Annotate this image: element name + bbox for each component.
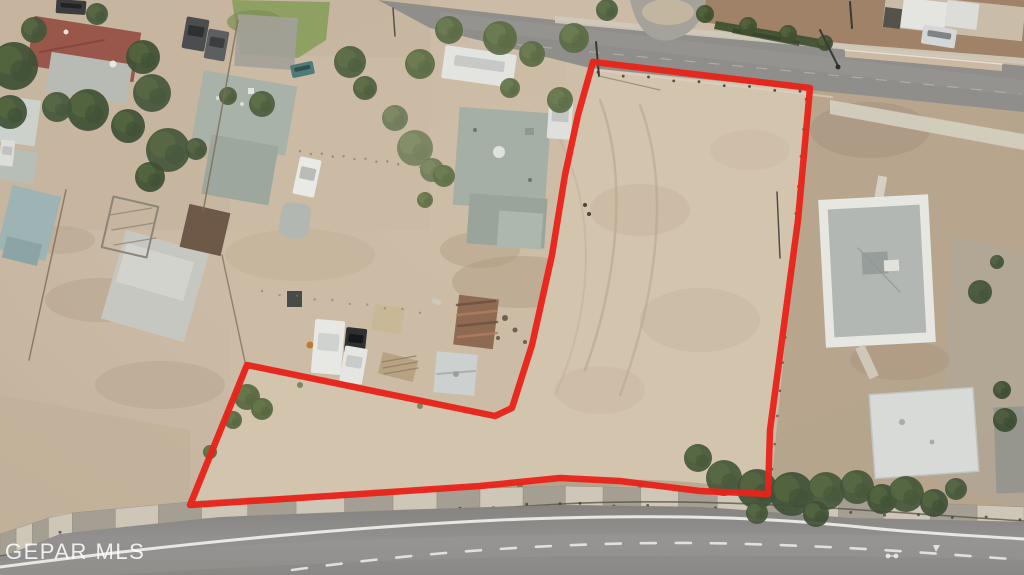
bush bbox=[990, 255, 1004, 269]
right-house-box bbox=[884, 260, 900, 272]
satellite-dish bbox=[110, 61, 117, 68]
bush bbox=[739, 17, 757, 35]
tree bbox=[596, 0, 618, 21]
tree bbox=[185, 138, 207, 160]
center-house bbox=[453, 107, 552, 211]
person-dot bbox=[587, 212, 591, 216]
junk bbox=[523, 340, 527, 344]
tree bbox=[888, 476, 924, 512]
tree bbox=[21, 17, 47, 43]
br-building bbox=[869, 387, 979, 478]
tree bbox=[111, 109, 145, 143]
roof-vent bbox=[899, 419, 905, 425]
bush bbox=[968, 280, 992, 304]
bush bbox=[779, 25, 797, 43]
dumpster bbox=[287, 291, 302, 307]
tree bbox=[559, 23, 589, 53]
tree bbox=[920, 489, 948, 517]
tree bbox=[353, 76, 377, 100]
sage-house-wing bbox=[201, 135, 278, 206]
tree bbox=[42, 92, 72, 122]
water-tank bbox=[493, 146, 505, 158]
tree bbox=[803, 501, 829, 527]
parcel-blotch bbox=[555, 366, 645, 414]
tree bbox=[519, 41, 545, 67]
parcel-blotch bbox=[590, 184, 690, 236]
junk bbox=[513, 328, 518, 333]
tree bbox=[417, 192, 433, 208]
roof-vent bbox=[528, 178, 532, 182]
tree bbox=[435, 16, 463, 44]
grass-tuft bbox=[297, 382, 303, 388]
tree bbox=[547, 87, 573, 113]
tr-building bbox=[945, 0, 980, 30]
watermark-text: GEPAR MLS bbox=[5, 539, 145, 565]
roof-vent bbox=[64, 30, 69, 35]
bush bbox=[817, 35, 833, 51]
tree bbox=[500, 78, 520, 98]
wood-platform bbox=[371, 304, 405, 335]
driveway-island bbox=[642, 0, 694, 25]
streetlight-head bbox=[836, 65, 841, 70]
tree bbox=[334, 46, 366, 78]
tree bbox=[945, 478, 967, 500]
scene-root bbox=[0, 0, 1024, 575]
tree bbox=[86, 3, 108, 25]
parcel-blotch bbox=[710, 130, 790, 170]
bush bbox=[993, 381, 1011, 399]
dark-car bbox=[56, 0, 87, 15]
tree bbox=[219, 87, 237, 105]
round-shed bbox=[277, 201, 312, 240]
dirt-blotch bbox=[95, 361, 225, 409]
tree bbox=[483, 21, 517, 55]
junk bbox=[502, 315, 508, 321]
tree bbox=[405, 49, 435, 79]
bush bbox=[993, 408, 1017, 432]
center-house-ext bbox=[497, 211, 543, 250]
parcel-blotch bbox=[640, 288, 760, 352]
ac-unit bbox=[525, 128, 534, 135]
bush bbox=[696, 5, 714, 23]
aerial-photo-stage: GEPAR MLS bbox=[0, 0, 1024, 575]
tree bbox=[133, 74, 171, 112]
aerial-photo bbox=[0, 0, 1024, 575]
white-truck bbox=[0, 139, 15, 166]
tl-driveway bbox=[234, 14, 297, 70]
tree bbox=[746, 502, 768, 524]
tr-dark-unit bbox=[883, 7, 902, 29]
tree bbox=[433, 165, 455, 187]
shed-vent bbox=[453, 371, 459, 377]
roof-vent bbox=[240, 102, 244, 106]
chimney bbox=[248, 88, 254, 94]
roof-vent bbox=[473, 128, 477, 132]
tree bbox=[251, 398, 273, 420]
person-dot bbox=[583, 203, 587, 207]
roof-vent bbox=[930, 440, 935, 445]
junk bbox=[496, 336, 500, 340]
tree bbox=[684, 444, 712, 472]
tree bbox=[126, 40, 160, 74]
tree bbox=[67, 89, 109, 131]
tree bbox=[382, 105, 408, 131]
tree bbox=[135, 162, 165, 192]
orange-item bbox=[307, 342, 314, 349]
tree bbox=[249, 91, 275, 117]
yard-rv bbox=[311, 319, 346, 375]
